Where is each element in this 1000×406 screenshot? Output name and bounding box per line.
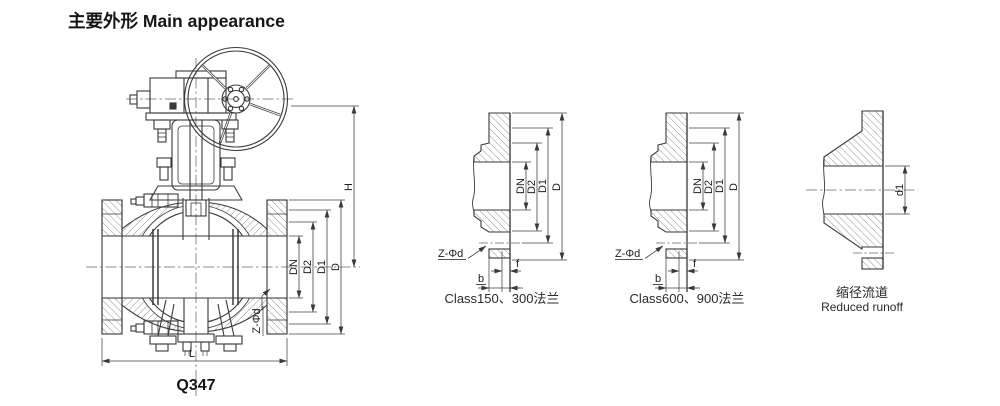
flange600-dim-b: b bbox=[655, 273, 661, 285]
flange600-dim-d: D bbox=[728, 183, 740, 191]
page-title: 主要外形 Main appearance bbox=[68, 11, 285, 31]
reduced-caption-cn: 缩径流道 bbox=[836, 285, 888, 300]
flange150-dim-d: D bbox=[551, 183, 563, 191]
reduced-caption-en: Reduced runoff bbox=[821, 300, 904, 314]
valve-model-label: Q347 bbox=[176, 377, 215, 394]
valve-dim-label-h: H bbox=[343, 183, 355, 191]
flange150-caption: Class150、300法兰 bbox=[445, 291, 560, 306]
valve-dim-label-d2: D2 bbox=[302, 260, 314, 274]
flange600-caption: Class600、900法兰 bbox=[630, 291, 745, 306]
input-shaft bbox=[130, 95, 137, 104]
valve-dim-label-d: D bbox=[330, 263, 342, 271]
flange150-dim-b: b bbox=[478, 273, 484, 285]
flange150-bolt-note: Z-Φd bbox=[438, 248, 463, 260]
reduced-dim-d1: d1 bbox=[894, 184, 906, 196]
technical-drawing-page: 主要外形 Main appearance bbox=[0, 0, 1000, 406]
drawing-canvas: 主要外形 Main appearance bbox=[0, 0, 1000, 406]
valve-bolt-note: Z-Φd bbox=[251, 308, 263, 333]
flange600-dim-d1: D1 bbox=[714, 179, 726, 193]
gear-actuator bbox=[130, 71, 236, 120]
flange600-bolt-note: Z-Φd bbox=[615, 248, 640, 260]
flange150-dim-d1: D1 bbox=[537, 179, 549, 193]
valve-dim-label-l: L bbox=[189, 348, 195, 360]
valve-dim-label-d1: D1 bbox=[316, 260, 328, 274]
valve-drawing bbox=[86, 48, 360, 397]
valve-dim-label-dn: DN bbox=[288, 259, 300, 275]
